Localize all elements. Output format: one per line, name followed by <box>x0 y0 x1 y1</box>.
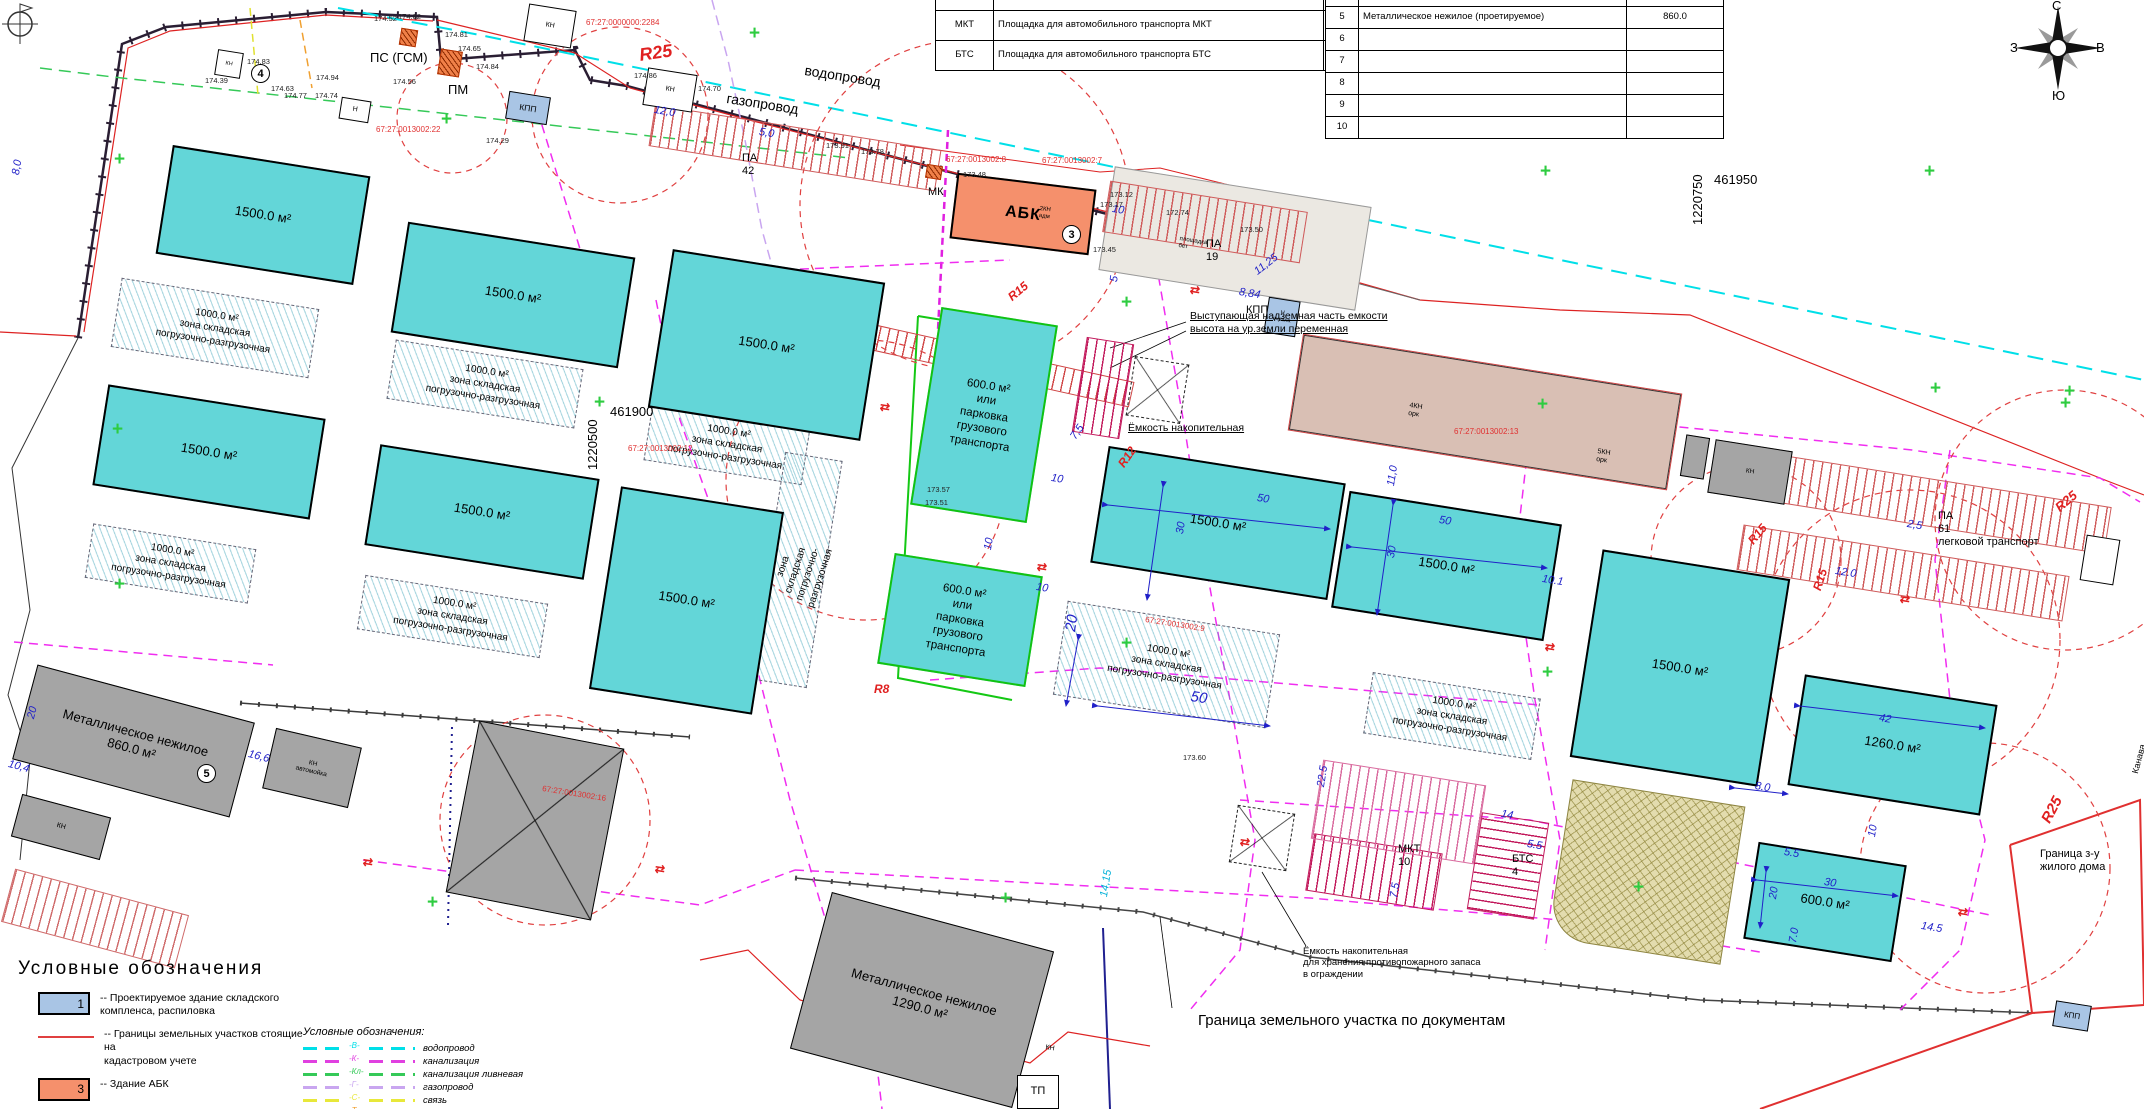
dimension-label: 10 <box>1866 824 1881 838</box>
objects-table-row-2: 6 <box>1326 29 1724 51</box>
radius-label: R25 <box>638 40 674 66</box>
dimension-label: 8,84 <box>1238 286 1261 302</box>
kn-right: КН <box>1707 439 1792 505</box>
annotation: ПА 19 <box>1206 238 1221 264</box>
tank-hatch <box>1072 337 1134 439</box>
objects-table-cell <box>1627 51 1724 73</box>
cadastral-number: 67:27:0013002:22 <box>376 125 441 135</box>
tp-box: ТП <box>1017 1075 1059 1109</box>
utility-label: водопровод <box>423 1043 475 1054</box>
legend-swatch-orange: 3 <box>38 1078 90 1101</box>
elevation-mark: 174.52 <box>374 14 397 23</box>
legend-main: Условные обозначения 1-- Проектируемое з… <box>8 952 308 1109</box>
objects-table-row-6: 10 <box>1326 117 1724 139</box>
sewer-vert <box>448 727 452 925</box>
zone-8-label: 1000.0 м² зона складская погрузочно-разг… <box>1392 688 1512 745</box>
warehouse-8: 1500.0 м² <box>1331 491 1562 641</box>
building-number-4: 4 <box>251 64 270 83</box>
metal-860: Металлическое нежилое 860.0 м² <box>12 665 255 818</box>
annotation: ПС (ГСМ) <box>370 50 428 66</box>
dimension-label: 30 <box>1385 545 1400 559</box>
utility-legend-item-3: -Г-газопровод <box>303 1081 523 1094</box>
ps-gsm-box <box>398 27 417 46</box>
legend-item-text: -- Проектируемое здание складского компл… <box>100 992 279 1018</box>
utility-label: канализация ливневая <box>423 1069 523 1080</box>
annotation: Граница з-у жилого дома <box>2040 848 2105 874</box>
objects-table-row-3: 7 <box>1326 51 1724 73</box>
dimension-label: 5 <box>1108 275 1122 283</box>
grid-cross: + <box>2064 382 2075 401</box>
utility-line-swatch: -Кл- <box>303 1073 415 1076</box>
flow-arrow-icon: ⇄ <box>654 861 666 876</box>
zone-1-label: 1000.0 м² зона складская погрузочно-разг… <box>155 300 275 357</box>
warehouse-11: 600.0 м² <box>1743 842 1906 962</box>
dimension-label: 11,0 <box>1385 465 1401 487</box>
granitsa-11 <box>14 642 273 665</box>
objects-table-cell <box>1359 73 1627 95</box>
elevation-mark: 174.82 <box>398 12 421 21</box>
zone-4-label: 1000.0 м² зона складская погрузочно-разг… <box>110 535 230 592</box>
elevation-mark: 174.84 <box>476 62 499 71</box>
annotation: БТС 4 <box>1512 853 1533 879</box>
red-parcel-br <box>2010 800 2144 1013</box>
warehouse-1: 1500.0 м² <box>156 145 371 285</box>
utility-code: -К- <box>347 1054 361 1063</box>
objects-table-cell: 9 <box>1326 95 1359 117</box>
annotation: Ёмкость накопительная для хранения проти… <box>1303 946 1481 980</box>
dimension-label: 2,5 <box>1906 518 1923 533</box>
grid-cross: + <box>114 575 125 594</box>
heat-line <box>300 20 312 88</box>
elevation-mark: 173.51 <box>925 498 948 507</box>
objects-table-cell <box>1627 95 1724 117</box>
dimension-label: 14,15 <box>1098 869 1115 898</box>
grid-cross: + <box>1000 889 1011 908</box>
annotation: МКТ 10 <box>1398 843 1420 869</box>
dimension-label: 10 <box>1050 472 1064 487</box>
elevation-mark: 173.17 <box>1100 200 1123 209</box>
existing-x-building <box>446 720 625 920</box>
utility-legend-item-2: -Кл-канализация ливневая <box>303 1068 523 1081</box>
dimension-label: 30 <box>1174 521 1189 535</box>
red-parcel-br2 <box>1760 1013 2032 1109</box>
elevation-mark: 173.60 <box>1183 753 1206 762</box>
legend-utilities: Условные обозначения: -В-водопровод-К-ка… <box>303 1026 523 1109</box>
annotation: КН <box>1045 1044 1055 1054</box>
objects-table-cell: 8 <box>1326 73 1359 95</box>
dimension-label: 50 <box>1438 514 1452 529</box>
objects-table-cell <box>1627 117 1724 139</box>
flow-arrow-icon: ⇄ <box>1544 639 1556 654</box>
legend-item-text: -- Здание АБК <box>100 1078 169 1091</box>
cadastral-number: 67:27:0000000:2284 <box>586 18 659 28</box>
grid-cross: + <box>1121 634 1132 653</box>
parking-table-cell: МКТ <box>936 11 994 41</box>
legend-item-2: 3-- Здание АБК <box>38 1078 308 1101</box>
grid-cross: + <box>1540 162 1551 181</box>
survey-marker-icon <box>2 2 46 46</box>
zone-8: 1000.0 м² зона складская погрузочно-разг… <box>1363 672 1541 760</box>
parking-table-cell: Площадка для автомобильного транспорта Б… <box>994 41 1324 71</box>
dimension-label: 42 <box>1878 712 1892 727</box>
utility-label: газопровод <box>423 1082 473 1093</box>
objects-list-table: 4Скважина (существующая)---5Металлическо… <box>1325 0 1724 139</box>
warehouse-7: 1500.0 м² <box>1090 446 1346 600</box>
elevation-mark: 173.91 <box>826 141 849 150</box>
dimension-label: 14 <box>1500 808 1514 823</box>
water-vert-bottom <box>1103 928 1110 1109</box>
objects-table-cell <box>1359 51 1627 73</box>
warehouse-3: 1500.0 м² <box>647 249 884 441</box>
annotation: водопровод <box>803 62 881 91</box>
annotation: МК <box>928 186 944 199</box>
red-bnd-1 <box>0 332 76 336</box>
annotation: 4КН орк <box>1407 402 1422 421</box>
annotation: Ёмкость накопительная <box>1128 422 1244 435</box>
zone-5: 1000.0 м² зона складская погрузочно-разг… <box>356 574 547 657</box>
legend-item-1: -- Границы земельных участков стоящие на… <box>38 1028 308 1067</box>
annotation: 1220500 <box>585 419 601 470</box>
black-left-bnd <box>8 338 78 860</box>
admin-landscape <box>1547 779 1745 964</box>
legend-swatch-blue: 1 <box>38 992 90 1015</box>
legend-item-0: 1-- Проектируемое здание складского комп… <box>38 992 308 1018</box>
objects-table-cell <box>1627 73 1724 95</box>
elevation-mark: 173.12 <box>1110 190 1133 199</box>
legend-redline-swatch <box>38 1036 94 1038</box>
fence-bottom-left-posts <box>240 703 690 737</box>
flow-arrow-icon: ⇄ <box>1899 591 1911 606</box>
utility-label: связь <box>423 1095 447 1106</box>
cadastral-number: 67:27:0013002:8 <box>946 155 1006 165</box>
annotation: ПА 42 <box>742 152 757 178</box>
elevation-mark: 173.50 <box>1240 225 1263 234</box>
leader-tank-3 <box>1262 872 1306 946</box>
dimension-label: 50 <box>1189 688 1208 708</box>
grid-cross: + <box>1537 395 1548 414</box>
annotation: ПМ <box>448 82 468 98</box>
objects-table-cell: 6 <box>1326 29 1359 51</box>
utility-line-swatch: -В- <box>303 1047 415 1050</box>
utility-code: -Г- <box>347 1080 361 1089</box>
elevation-mark: 174.39 <box>205 76 228 85</box>
legend-item-text: -- Границы земельных участков стоящие на… <box>104 1028 308 1067</box>
grid-cross: + <box>1542 663 1553 682</box>
flow-arrow-icon: ⇄ <box>362 854 374 869</box>
annotation: 1220750 <box>1690 174 1706 225</box>
utility-label: канализация <box>423 1056 479 1067</box>
existing-pink-building <box>1289 335 1681 490</box>
annotation: 461900 <box>610 404 653 420</box>
dimension-label: 10 <box>982 537 997 551</box>
objects-table-cell <box>1359 117 1627 139</box>
building-number-5: 5 <box>197 764 216 783</box>
grid-cross: + <box>1924 162 1935 181</box>
dimension-label: 10 <box>1035 581 1049 596</box>
radius-label: R15 <box>1005 279 1031 304</box>
dimension-label: 14.5 <box>1920 920 1943 936</box>
utility-code: -В- <box>347 1041 362 1050</box>
grid-cross: + <box>1930 379 1941 398</box>
elevation-mark: 174.94 <box>316 73 339 82</box>
zone-1: 1000.0 м² зона складская погрузочно-разг… <box>111 278 319 378</box>
radius-label: R25 <box>2038 794 2067 827</box>
objects-table-cell: 7 <box>1326 51 1359 73</box>
dimension-label: 5,0 <box>758 126 775 141</box>
kn-top: КН <box>523 3 576 48</box>
parking-table-cell: Площадка для автомобильного транспорта М… <box>994 11 1324 41</box>
utility-code: -С- <box>347 1093 362 1102</box>
objects-table-cell <box>1359 29 1627 51</box>
objects-table-cell <box>1627 29 1724 51</box>
grid-cross: + <box>1633 878 1644 897</box>
kn-right-small <box>1680 434 1710 479</box>
parking-table-cell: БТС <box>936 41 994 71</box>
utility-line-swatch: -Г- <box>303 1086 415 1089</box>
utility-legend-item-4: -С-связь <box>303 1094 523 1107</box>
objects-table-row-5: 9 <box>1326 95 1724 117</box>
cadastral-number: 67:27:0013002:12 <box>628 444 693 454</box>
compass-west-label: З <box>2010 40 2018 55</box>
elevation-mark: 173.78 <box>861 147 884 156</box>
compass-north-label: С <box>2052 0 2061 13</box>
utility-code: -Кл- <box>347 1067 366 1076</box>
elevation-mark: 174.65 <box>458 44 481 53</box>
annotation: КПП <box>1246 304 1268 317</box>
flow-arrow-icon: ⇄ <box>1239 834 1251 849</box>
dimension-label: 20 <box>1767 886 1782 900</box>
annotation: газопровод <box>725 90 799 118</box>
parking-bts <box>1467 812 1549 919</box>
dimension-label: 7.0 <box>1787 927 1802 944</box>
elevation-mark: 174.56 <box>393 77 416 86</box>
cadastral-number: 67:27:0013002:13 <box>1454 427 1519 437</box>
grid-cross: + <box>112 420 123 439</box>
elevation-mark: 174.77 <box>284 91 307 100</box>
utility-legend-item-0: -В-водопровод <box>303 1042 523 1055</box>
warehouse-4: 1500.0 м² <box>92 384 325 519</box>
tank-bottom <box>1229 805 1295 871</box>
elevation-mark: 174.86 <box>634 71 657 80</box>
fence-bottom-left <box>240 703 690 737</box>
parking-table-cell: ПА <box>936 0 994 11</box>
zone-4: 1000.0 м² зона складская погрузочно-разг… <box>84 523 256 603</box>
dimension-label: 16,6 <box>247 748 271 766</box>
objects-table-cell: 860.0 <box>1627 7 1724 29</box>
kn-bottom-left: КН <box>11 794 111 860</box>
utility-line-swatch: -К- <box>303 1060 415 1063</box>
zone-5-label: 1000.0 м² зона складская погрузочно-разг… <box>392 588 512 645</box>
objects-table-cell: 5 <box>1326 7 1359 29</box>
objects-table-cell: 10 <box>1326 117 1359 139</box>
radius-label: R8 <box>874 682 889 696</box>
elevation-mark: 173.48 <box>963 170 986 179</box>
annotation: ПА 61 легковой транспорт <box>1938 510 2038 550</box>
metal-1290: Металлическое нежилое 1290.0 м² <box>790 892 1054 1108</box>
annotation: Выступающая надземная часть емкости высо… <box>1190 310 1388 335</box>
annotation: Канава <box>2130 743 2144 775</box>
elevation-mark: 172.74 <box>1166 208 1189 217</box>
dimension-label: 20 <box>1062 614 1082 633</box>
n-box: Н <box>338 97 371 123</box>
warehouse-5: 1500.0 м² <box>364 444 599 579</box>
annotation: 461950 <box>1714 172 1757 188</box>
kn-top-2: КН <box>214 49 244 79</box>
elevation-mark: 174.74 <box>315 91 338 100</box>
grid-cross: + <box>1121 293 1132 312</box>
grid-cross: + <box>427 893 438 912</box>
dimension-label: 8.0 <box>1754 780 1771 795</box>
tank-top <box>1125 356 1189 424</box>
zone-2-label: 1000.0 м² зона складская погрузочно-разг… <box>425 356 545 413</box>
elevation-mark: 174.81 <box>445 30 468 39</box>
dimension-label: 50 <box>1256 492 1270 507</box>
compass-south-label: Ю <box>2052 88 2065 103</box>
flow-arrow-icon: ⇄ <box>1957 904 1969 919</box>
objects-table-row-4: 8 <box>1326 73 1724 95</box>
site-plan: 1000.0 м² зона складская погрузочно-разг… <box>0 0 2144 1109</box>
kpp-bottom-right: КПП <box>2052 1000 2092 1031</box>
grid-cross: + <box>594 393 605 412</box>
dimension-label: 5.5 <box>1526 838 1543 853</box>
elevation-mark: 173.45 <box>1093 245 1116 254</box>
annotation: Граница земельного участка по документам <box>1198 1012 1505 1030</box>
cadastral-number: 67:27:0013002:7 <box>1042 156 1102 166</box>
legend-utilities-title: Условные обозначения: <box>303 1026 523 1038</box>
warehouse-600-2: 600.0 м² или парковка грузового транспор… <box>877 553 1043 687</box>
kpp-top-left: КПП <box>505 91 551 125</box>
dimension-label: 30 <box>1823 876 1837 891</box>
elevation-mark: 174.29 <box>486 136 509 145</box>
objects-table-row-1: 5Металлическое нежилое (проетируемое)860… <box>1326 7 1724 29</box>
elevation-mark: 174.70 <box>698 84 721 93</box>
building-number-3: 3 <box>1062 225 1081 244</box>
mk-box <box>925 164 943 180</box>
utility-legend-item-1: -К-канализация <box>303 1055 523 1068</box>
dimension-label: 8,0 <box>10 159 25 176</box>
parking-table-cell: Площадка автомобильная для легкового тра… <box>994 0 1324 11</box>
leader-granitsa <box>1160 917 1172 1008</box>
dimension-label: 7.5 <box>1388 882 1403 899</box>
flow-arrow-icon: ⇄ <box>1036 559 1048 574</box>
annotation: 2КН адм <box>1038 206 1051 222</box>
transformer-box <box>2080 535 2121 586</box>
grid-cross: + <box>749 24 760 43</box>
dimension-label: 5.5 <box>1783 846 1800 861</box>
flow-arrow-icon: ⇄ <box>879 399 891 414</box>
objects-table-cell <box>1359 95 1627 117</box>
carwash: КН автомойка <box>262 728 362 808</box>
compass-east-label: В <box>2096 40 2105 55</box>
objects-table-cell: Металлическое нежилое (проетируемое) <box>1359 7 1627 29</box>
elevation-mark: 173.57 <box>927 485 950 494</box>
warehouse-10: 1260.0 м² <box>1787 674 1997 815</box>
annotation: 5КН орк <box>1595 448 1610 467</box>
utility-line-swatch: -С- <box>303 1099 415 1102</box>
flow-arrow-icon: ⇄ <box>1189 282 1201 297</box>
legend-title: Условные обозначения <box>18 958 308 980</box>
warehouse-6: 1500.0 м² <box>588 486 783 714</box>
compass-rose-icon: С Ю З В <box>2012 0 2104 104</box>
grid-cross: + <box>114 150 125 169</box>
grid-cross: + <box>441 110 452 129</box>
warehouse-9: 1500.0 м² <box>1570 549 1791 786</box>
